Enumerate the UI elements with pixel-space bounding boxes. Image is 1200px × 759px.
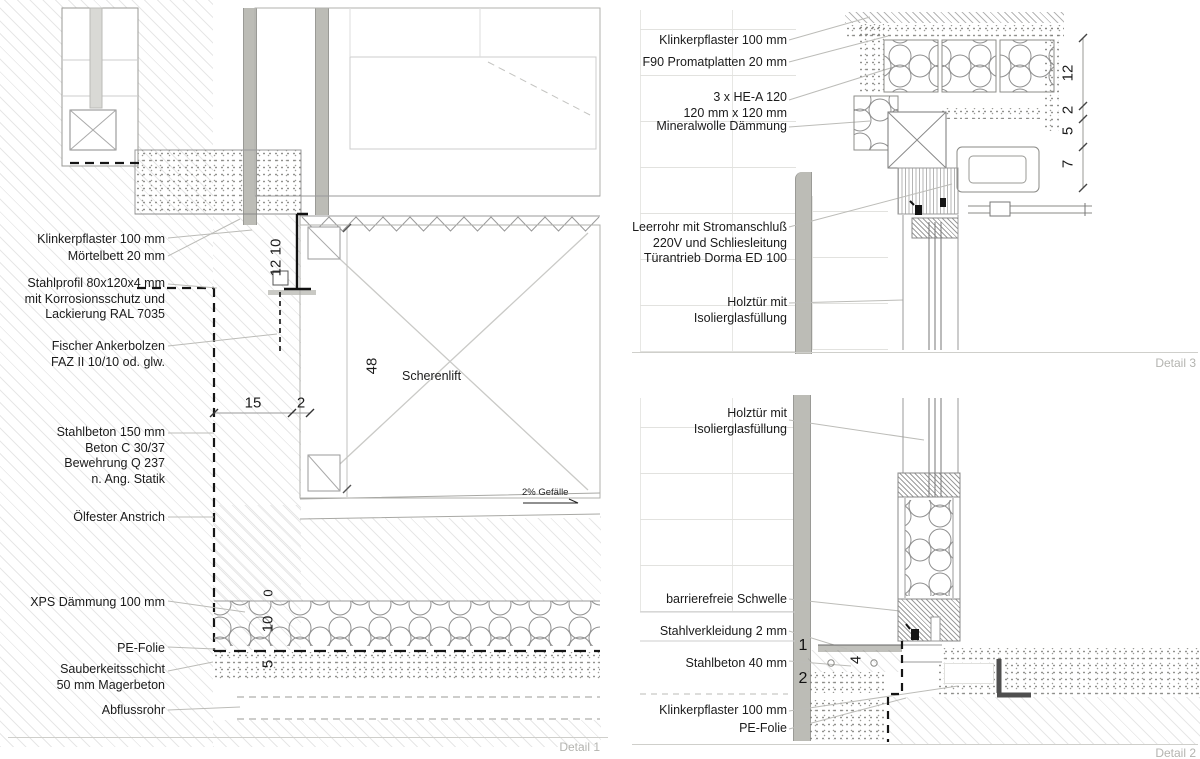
d3-wall-edge-bar <box>795 172 812 354</box>
annotation-gefaelle: 2% Gefälle <box>522 487 568 498</box>
label-d3-mineralwolle: Mineralwolle Dämmung <box>630 119 787 135</box>
dim-d3-2: 2 <box>1060 106 1077 114</box>
dim-d1-zero: 0 <box>261 589 276 596</box>
label-d2-stahlverkleidung: Stahlverkleidung 2 mm <box>630 624 787 640</box>
dim-d1-ledge2: 2 <box>297 395 305 412</box>
d3-concrete-col-left <box>858 24 884 92</box>
label-d1-sauberkeitsschicht: Sauberkeitsschicht 50 mm Magerbeton <box>8 662 165 693</box>
label-d1-xps: XPS Dämmung 100 mm <box>8 595 165 611</box>
label-d1-moertelbett: Mörtelbett 20 mm <box>8 249 165 265</box>
d2-step-tread <box>902 645 942 662</box>
label-d2-holztuer: Holztür mit Isolierglasfüllung <box>630 406 787 437</box>
label-d1-abflussrohr: Abflussrohr <box>8 703 165 719</box>
d2-caption-line <box>632 744 1198 745</box>
d2-paving-inset <box>944 663 994 684</box>
d1-caption-line <box>8 737 608 738</box>
d2-door-frame <box>898 473 960 497</box>
d3-masonry-reveal <box>812 196 888 350</box>
d3-lintel-promat <box>898 168 958 214</box>
d2-pe-layer-left <box>808 700 884 740</box>
marker-d2-4: 4 <box>848 656 865 664</box>
dim-d3-5: 5 <box>1060 127 1077 135</box>
marker-d2-1: 1 <box>799 637 808 655</box>
dim-d3-7: 7 <box>1060 160 1077 168</box>
label-d2-klinkerpflaster: Klinkerpflaster 100 mm <box>630 703 787 719</box>
d2-soil-hatch <box>889 697 1200 744</box>
label-d3-promatplatten: F90 Promatplatten 20 mm <box>630 55 787 71</box>
d2-caption: Detail 2 <box>1046 746 1196 759</box>
d2-panel-edge-left <box>899 498 905 598</box>
label-d3-leerrohr: Leerrohr mit Stromanschluß 220V und Schl… <box>630 220 787 267</box>
d3-concrete-underbeam <box>940 108 1044 119</box>
construction-detail-sheet: Klinkerpflaster 100 mm Mörtelbett 20 mm … <box>0 0 1200 759</box>
label-d1-ankerbolzen: Fischer Ankerbolzen FAZ II 10/10 od. glw… <box>8 339 165 370</box>
d3-door-top-rail <box>912 218 958 238</box>
d2-door-bottom-rail <box>898 599 960 641</box>
d1-caption: Detail 1 <box>448 740 600 754</box>
d1-profile-base-plate <box>268 290 316 295</box>
label-d1-stahlbeton: Stahlbeton 150 mm Beton C 30/37 Bewehrun… <box>8 425 165 488</box>
dim-d1-klinker: 10 <box>268 239 285 256</box>
label-d3-klinkerpflaster: Klinkerpflaster 100 mm <box>630 33 787 49</box>
label-d1-pe-folie: PE-Folie <box>8 641 165 657</box>
dim-d1-pit-depth: 48 <box>364 358 381 375</box>
annotation-scherenlift: Scherenlift <box>402 369 461 383</box>
label-d1-stahlprofil: Stahlprofil 80x120x4 mm mit Korrosionssc… <box>8 276 165 323</box>
d3-caption: Detail 3 <box>1046 356 1196 370</box>
dim-d1-sauberkeit: 5 <box>260 660 277 668</box>
d3-concrete-col-right <box>1043 25 1059 131</box>
d1-klinker-cap <box>135 150 301 214</box>
d1-subslab-hatch <box>213 505 601 601</box>
d2-bedding-left <box>808 672 886 693</box>
label-d3-holztuer: Holztür mit Isolierglasfüllung <box>630 295 787 326</box>
d2-panel-edge-right <box>954 498 960 598</box>
label-d2-pe-folie: PE-Folie <box>630 721 787 737</box>
d1-column-right <box>315 8 329 215</box>
dim-d1-ledge: 15 <box>245 395 262 412</box>
d1-soil-hatch-left <box>0 0 213 747</box>
d1-column-left <box>243 8 257 225</box>
label-d1-oelfester-anstrich: Ölfester Anstrich <box>8 510 165 526</box>
dim-d1-profil: 12 <box>268 260 285 277</box>
d3-caption-line <box>632 352 1198 353</box>
label-d2-stahlbeton: Stahlbeton 40 mm <box>630 656 787 672</box>
marker-d2-2: 2 <box>799 670 808 688</box>
label-d1-klinkerpflaster: Klinkerpflaster 100 mm <box>8 232 165 248</box>
dim-d3-12: 12 <box>1060 65 1077 82</box>
label-d2-schwelle: barrierefreie Schwelle <box>630 592 787 608</box>
label-d3-hea-traeger: 3 x HE-A 120 120 mm x 120 mm <box>630 90 787 121</box>
dim-d1-xps: 10 <box>260 616 277 633</box>
d3-klinker-strip <box>845 12 1064 23</box>
